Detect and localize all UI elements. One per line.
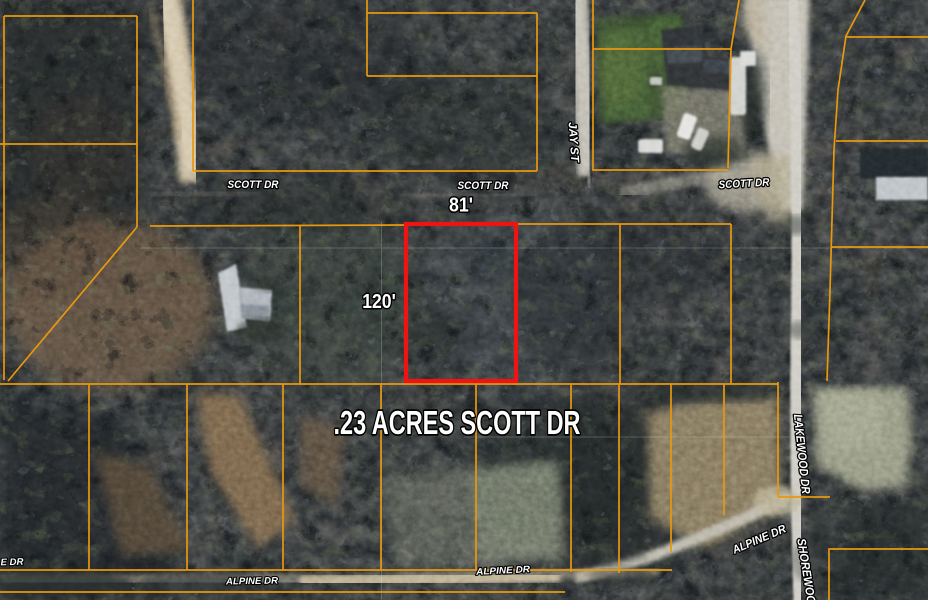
svg-text:ALPINE DR: ALPINE DR [225,576,278,588]
svg-text:SCOTT DR: SCOTT DR [458,180,509,192]
svg-text:SCOTT DR: SCOTT DR [228,179,279,191]
svg-text:81': 81' [449,195,473,217]
svg-text:E DR: E DR [0,557,24,569]
svg-text:.23 ACRES SCOTT DR: .23 ACRES SCOTT DR [334,405,581,442]
svg-text:120': 120' [362,290,396,313]
